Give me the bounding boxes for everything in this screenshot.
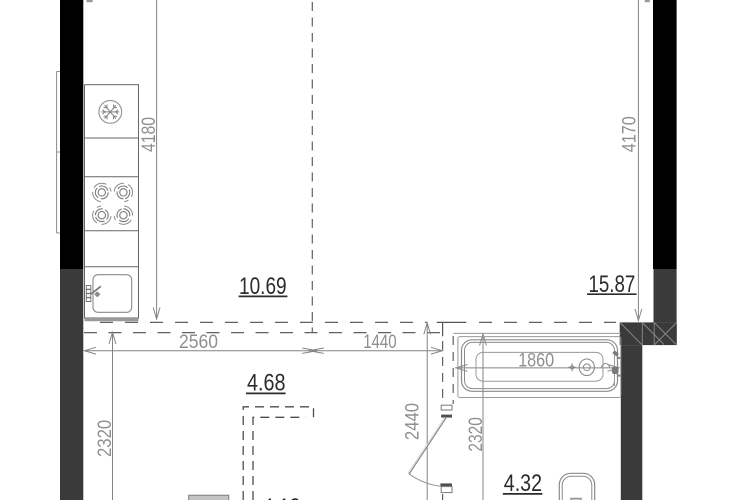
svg-text:1860: 1860 [518, 351, 554, 372]
svg-text:2320: 2320 [466, 417, 487, 451]
svg-text:1440: 1440 [363, 332, 397, 353]
svg-text:2440: 2440 [403, 403, 424, 440]
svg-text:2560: 2560 [179, 332, 218, 353]
svg-text:4.18: 4.18 [263, 494, 301, 500]
svg-text:4180: 4180 [139, 117, 160, 152]
svg-text:4.32: 4.32 [504, 470, 542, 497]
svg-text:2320: 2320 [95, 420, 116, 457]
svg-text:4170: 4170 [620, 116, 641, 152]
